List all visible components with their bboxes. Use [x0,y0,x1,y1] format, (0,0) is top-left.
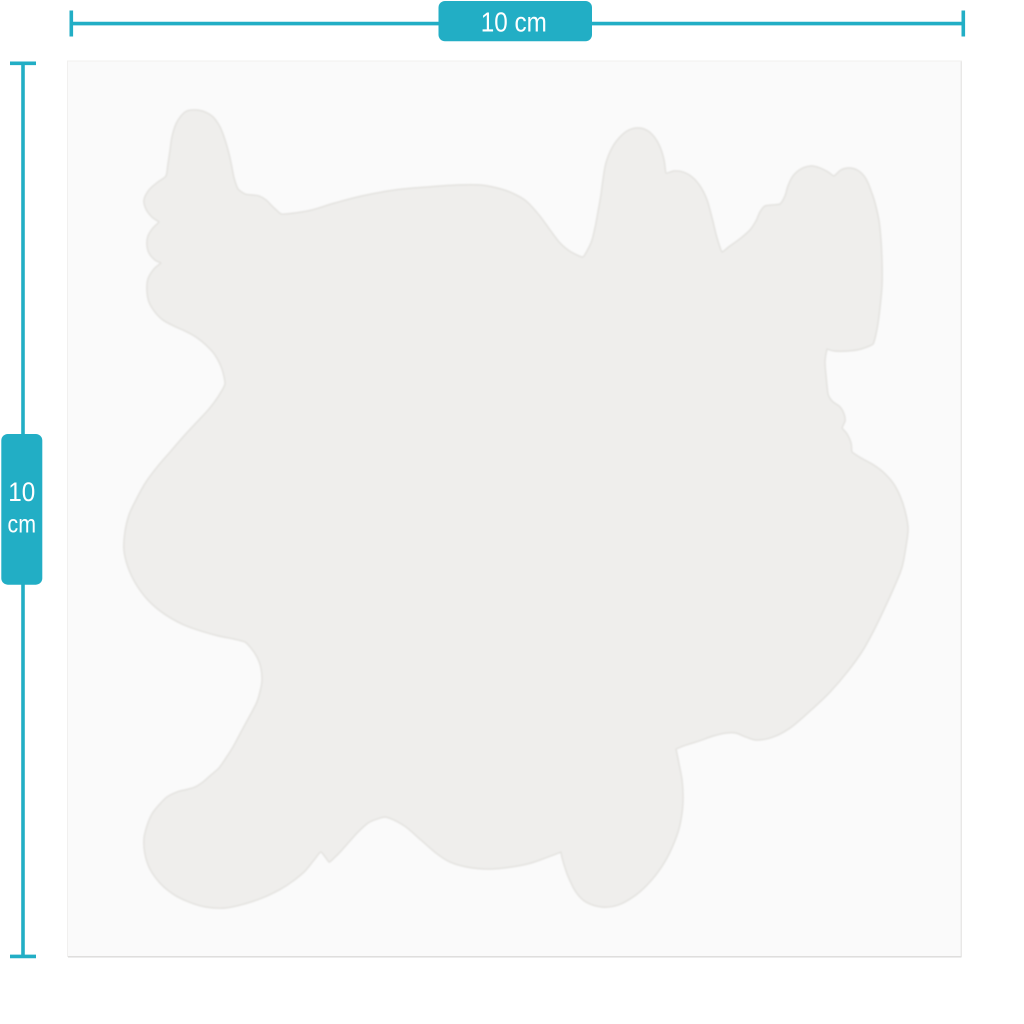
svg-text:10: 10 [8,477,35,507]
svg-text:10 cm: 10 cm [481,6,547,37]
svg-text:cm: cm [8,511,37,539]
